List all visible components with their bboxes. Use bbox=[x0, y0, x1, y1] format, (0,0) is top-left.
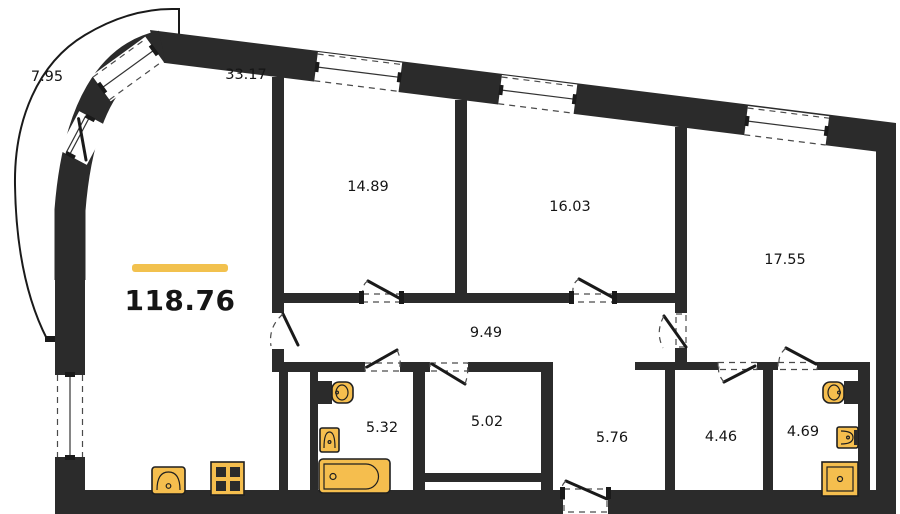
window-top-1 bbox=[313, 52, 403, 94]
area-label-bedroom-3: 17.55 bbox=[764, 252, 806, 268]
door-ensuite bbox=[778, 348, 817, 370]
floorplan-canvas: 118.76 7.95 33.17 14.89 16.03 17.55 9.49… bbox=[0, 0, 900, 514]
total-area-underline bbox=[132, 264, 228, 272]
stove-icon bbox=[211, 462, 244, 495]
area-label-bedroom-2: 16.03 bbox=[549, 199, 591, 215]
area-label-entry-hall: 5.76 bbox=[596, 430, 628, 446]
total-area-label: 118.76 bbox=[124, 284, 235, 317]
shower-icon bbox=[822, 462, 858, 496]
wall-left-upper bbox=[55, 268, 85, 375]
wall-left-lower bbox=[55, 457, 85, 490]
windows bbox=[55, 36, 830, 460]
area-label-corridor: 9.49 bbox=[470, 325, 502, 341]
window-top-2 bbox=[497, 75, 578, 115]
door-bathroom bbox=[365, 350, 400, 371]
door-bedroom-1 bbox=[359, 281, 404, 304]
window-top-3 bbox=[743, 106, 830, 147]
bathtub-icon bbox=[319, 459, 390, 493]
door-bedroom-3 bbox=[659, 314, 686, 348]
door-living bbox=[271, 314, 299, 346]
area-label-living-kitchen: 33.17 bbox=[225, 67, 267, 83]
window-left bbox=[55, 372, 85, 460]
wall-right bbox=[876, 123, 896, 514]
area-label-storage: 5.02 bbox=[471, 414, 503, 430]
toilet-icon bbox=[318, 381, 353, 404]
area-label-wardrobe: 4.46 bbox=[705, 429, 737, 445]
door-bedroom-2 bbox=[569, 279, 617, 304]
area-label-bedroom-1: 14.89 bbox=[347, 179, 389, 195]
wash-basin-icon bbox=[320, 428, 339, 452]
ensuite-basin-icon bbox=[837, 427, 858, 448]
door-storage bbox=[430, 363, 468, 384]
area-label-bathroom: 5.32 bbox=[366, 420, 398, 436]
area-label-balcony: 7.95 bbox=[31, 69, 63, 85]
kitchen-sink-icon bbox=[152, 467, 185, 494]
area-label-ensuite: 4.69 bbox=[787, 424, 819, 440]
ensuite-toilet-icon bbox=[823, 381, 858, 404]
wall-bottom-left bbox=[55, 490, 563, 514]
door-entrance bbox=[560, 481, 611, 514]
door-wardrobe bbox=[718, 363, 757, 383]
